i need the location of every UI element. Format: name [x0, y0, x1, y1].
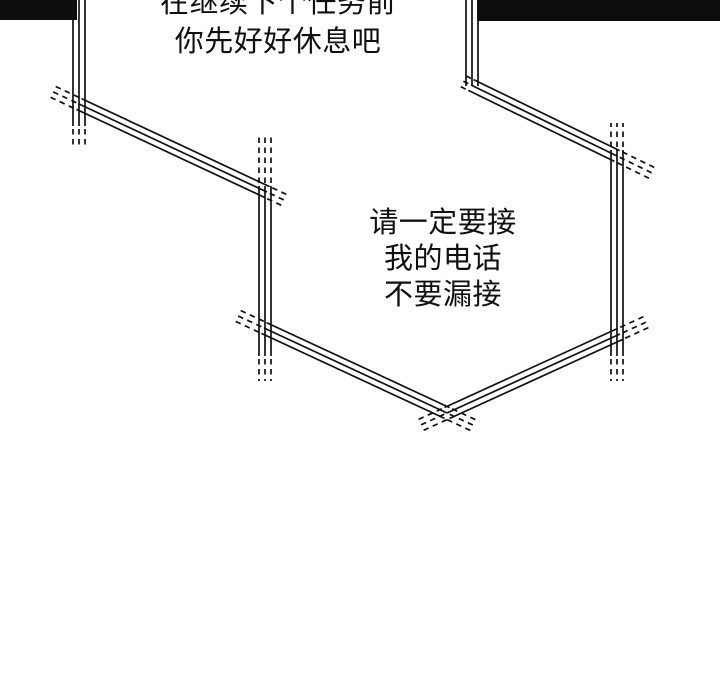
top-dialogue: 在继续下个任务前 你先好好休息吧	[160, 0, 396, 62]
previous-panel-edge-right	[477, 0, 720, 21]
top-dialogue-line-2: 你先好好休息吧	[160, 23, 396, 62]
bubble-sketch-strokes	[50, 0, 658, 432]
top-dialogue-line-1: 在继续下个任务前	[160, 0, 396, 23]
manga-page: 在继续下个任务前 你先好好休息吧 请一定要接 我的电话 不要漏接	[0, 0, 720, 700]
bubble-dialogue-line-2: 我的电话	[369, 241, 517, 277]
speech-bubble-outline	[0, 0, 720, 700]
bubble-dialogue-line-3: 不要漏接	[369, 277, 517, 313]
bubble-dialogue: 请一定要接 我的电话 不要漏接	[369, 205, 517, 313]
bubble-dialogue-line-1: 请一定要接	[369, 205, 517, 241]
previous-panel-edge-left	[0, 0, 77, 20]
